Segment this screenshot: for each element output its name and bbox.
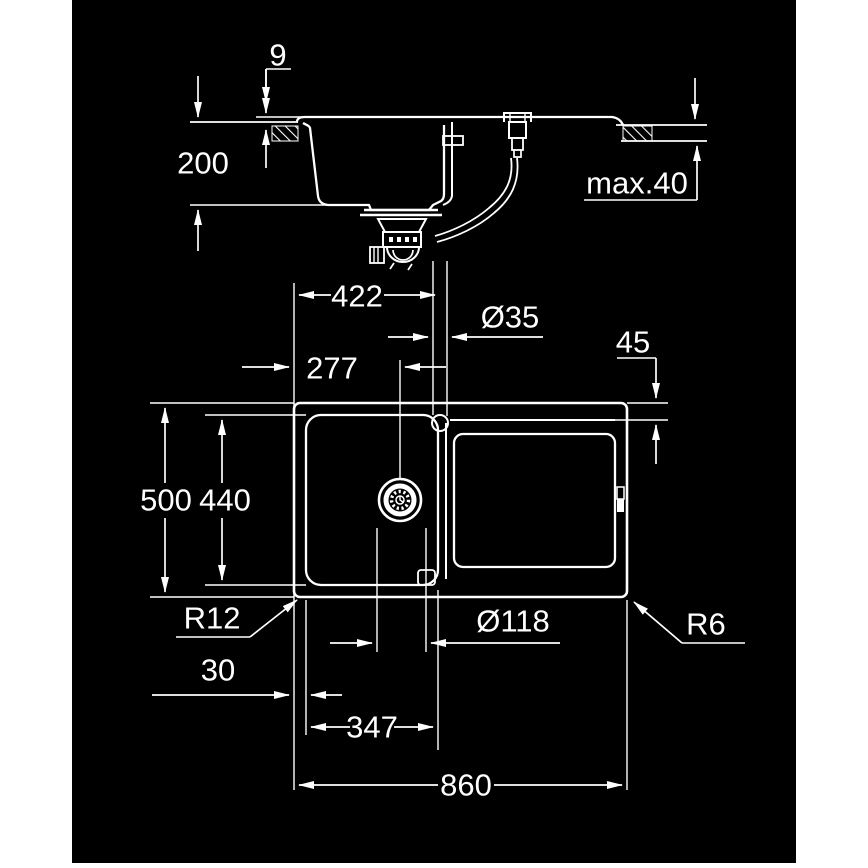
overall-width-label: 860 [440,768,492,803]
tap-from-left-label: 422 [331,279,383,314]
bowl-depth-label: 200 [177,146,229,181]
drain-strainer [379,479,421,521]
rim-width-label: 30 [201,653,235,688]
counter-thickness-label: max.40 [586,166,688,201]
corner-radius-left-label: R12 [184,601,241,636]
counter-hatch-left [272,126,298,141]
drain-from-left-label: 277 [306,351,358,386]
tap-hole-diameter-label: Ø35 [481,300,540,335]
drainer-offset-label: 45 [616,325,650,360]
rim-height-label: 9 [269,38,286,73]
corner-radius-right-label: R6 [686,607,726,642]
inner-depth-label: 440 [199,483,251,518]
sink-dimension-diagram: 9 200 max.40 [0,0,868,868]
rim-clip-solid [617,499,624,512]
technical-drawing-page: 9 200 max.40 [0,0,868,868]
overall-depth-label: 500 [140,483,192,518]
counter-hatch-right [623,126,652,141]
drawing-panel [72,0,796,863]
bowl-width-label: 347 [346,710,398,745]
drain-cutout-label: Ø118 [476,604,550,639]
